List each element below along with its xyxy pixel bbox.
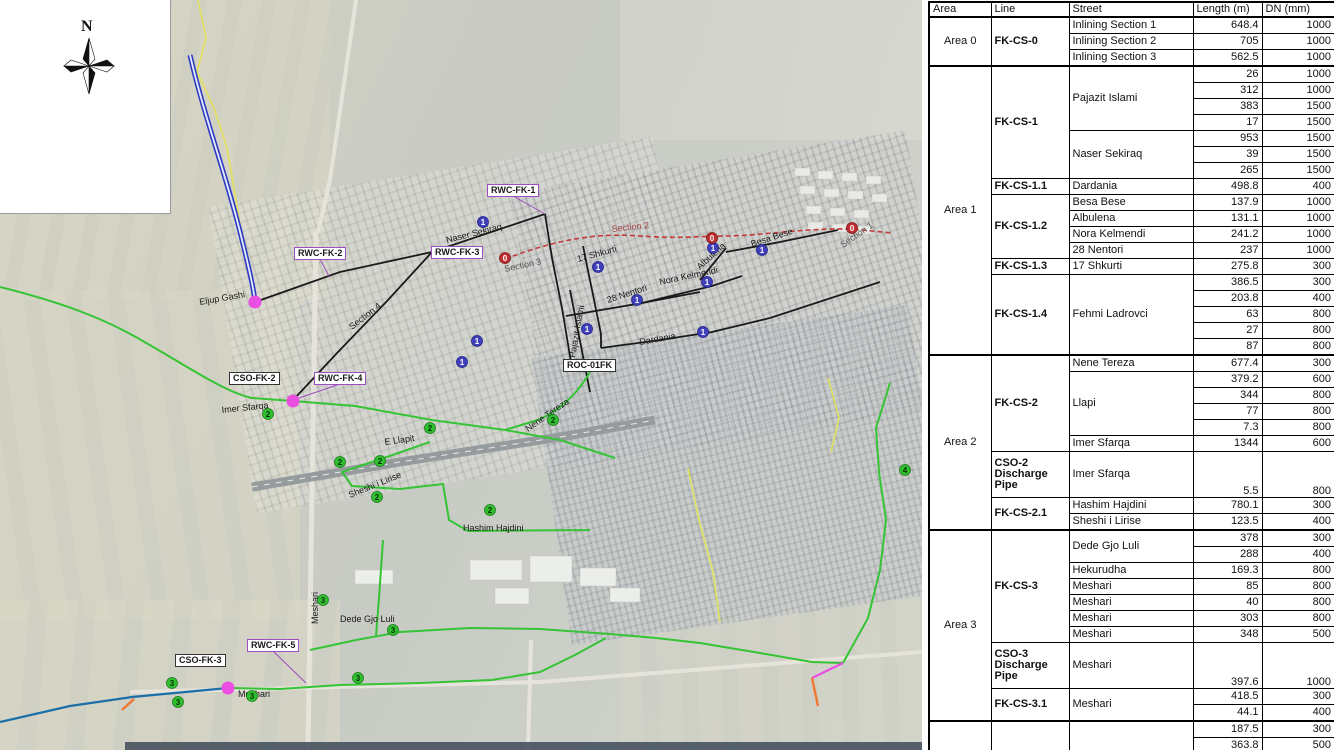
line-cell: FK-CS-2.1 <box>991 498 1069 531</box>
pipe-orange <box>122 699 134 710</box>
boundary-line-yellow <box>828 378 839 452</box>
line-cell: FK-CS-4 <box>991 721 1069 750</box>
column-header: Line <box>991 2 1069 17</box>
length-cell: 780.1 <box>1193 498 1262 514</box>
road <box>308 232 316 750</box>
page: Naser SekiraqEljup GashiSection 4Section… <box>0 0 1334 750</box>
outfall-dot <box>287 395 300 408</box>
length-cell: 386.5 <box>1193 275 1262 291</box>
length-cell: 379.2 <box>1193 372 1262 388</box>
street-cell: Naser Sekiraq <box>1069 131 1193 179</box>
street-label: Nene Tereza <box>523 396 570 433</box>
dn-cell: 1000 <box>1262 211 1334 227</box>
dn-cell: 1000 <box>1262 243 1334 259</box>
dn-cell: 1500 <box>1262 131 1334 147</box>
street-label: Besa Bese <box>750 226 794 249</box>
area-cell: Area 3 <box>929 530 991 721</box>
length-cell: 348 <box>1193 627 1262 643</box>
node-marker-number: 1 <box>475 337 480 346</box>
dn-cell: 300 <box>1262 689 1334 705</box>
road <box>318 0 356 232</box>
area-markers: 111111111100022222223333334 <box>167 217 911 708</box>
street-label: Naser Sekiraq <box>445 221 503 245</box>
street-cell: Inlining Section 3 <box>1069 50 1193 67</box>
street-cell: Imer Sfarqa <box>1069 436 1193 452</box>
node-marker-number: 0 <box>710 234 715 243</box>
length-cell: 63 <box>1193 307 1262 323</box>
dn-cell: 300 <box>1262 259 1334 275</box>
callout-leader <box>513 196 545 214</box>
pipe-orange <box>812 678 818 706</box>
street-cell: Meshari <box>1069 643 1193 689</box>
node-marker-number: 2 <box>375 493 380 502</box>
node-marker-number: 1 <box>760 246 765 255</box>
street-cell: 17 Shkurti <box>1069 259 1193 275</box>
river-conduit-gap <box>190 55 255 302</box>
dn-cell: 800 <box>1262 611 1334 627</box>
length-cell: 418.5 <box>1193 689 1262 705</box>
table-row: Area 4FK-CS-4Uglar-Bresje187.5300 <box>929 721 1334 738</box>
length-cell: 137.9 <box>1193 195 1262 211</box>
building <box>495 588 529 604</box>
dn-cell: 1500 <box>1262 99 1334 115</box>
length-cell: 237 <box>1193 243 1262 259</box>
pipe-table-panel: AreaLineStreetLength (m)DN (mm)Area 0FK-… <box>928 1 1334 749</box>
building-footprints <box>355 168 887 604</box>
dn-cell: 1000 <box>1262 643 1334 689</box>
length-cell: 953 <box>1193 131 1262 147</box>
line-cell: FK-CS-1.1 <box>991 179 1069 195</box>
length-cell: 7.3 <box>1193 420 1262 436</box>
node-marker-number: 2 <box>551 416 556 425</box>
column-header: Street <box>1069 2 1193 17</box>
length-cell: 39 <box>1193 147 1262 163</box>
dn-cell: 400 <box>1262 547 1334 563</box>
node-marker-number: 2 <box>266 410 271 419</box>
length-cell: 1344 <box>1193 436 1262 452</box>
photo-edge <box>125 742 922 750</box>
building <box>580 568 616 586</box>
dn-cell: 1000 <box>1262 34 1334 50</box>
length-cell: 26 <box>1193 66 1262 83</box>
node-marker-number: 0 <box>503 254 508 263</box>
length-cell: 677.4 <box>1193 355 1262 372</box>
area-cell: Area 0 <box>929 17 991 66</box>
dn-cell: 300 <box>1262 355 1334 372</box>
street-label: Section 2 <box>611 220 649 234</box>
column-header: Length (m) <box>1193 2 1262 17</box>
street-cell: Imer Sfarqa <box>1069 452 1193 498</box>
line-cell: FK-CS-1.3 <box>991 259 1069 275</box>
street-label: E Llapit <box>384 433 416 447</box>
street-cell: 28 Nentori <box>1069 243 1193 259</box>
street-cell: Albulena <box>1069 211 1193 227</box>
building <box>808 222 823 230</box>
length-cell: 241.2 <box>1193 227 1262 243</box>
street-cell: Pajazit Islami <box>1069 66 1193 131</box>
street-cell: Meshari <box>1069 689 1193 722</box>
street-cell: Sheshi i Lirise <box>1069 514 1193 531</box>
inlining-line-red <box>505 229 892 259</box>
dn-cell: 1000 <box>1262 227 1334 243</box>
discharge-line-teal <box>0 688 228 722</box>
boundary-line-yellow <box>688 468 720 622</box>
street-label: Imer Sfarqa <box>221 400 269 415</box>
length-cell: 562.5 <box>1193 50 1262 67</box>
length-cell: 27 <box>1193 323 1262 339</box>
street-cell: Hekurudha <box>1069 563 1193 579</box>
pipe-segments-table: AreaLineStreetLength (m)DN (mm)Area 0FK-… <box>928 1 1334 750</box>
dn-cell: 1500 <box>1262 147 1334 163</box>
street-cell: Llapi <box>1069 372 1193 436</box>
dn-cell: 800 <box>1262 579 1334 595</box>
length-cell: 275.8 <box>1193 259 1262 275</box>
dn-cell: 300 <box>1262 275 1334 291</box>
dn-cell: 300 <box>1262 721 1334 738</box>
length-cell: 705 <box>1193 34 1262 50</box>
length-cell: 312 <box>1193 83 1262 99</box>
dn-cell: 800 <box>1262 339 1334 356</box>
street-labels: Naser SekiraqEljup GashiSection 4Section… <box>199 220 875 699</box>
length-cell: 378 <box>1193 530 1262 547</box>
road <box>130 652 922 692</box>
street-cell: Dede Gjo Luli <box>1069 530 1193 563</box>
dn-cell: 1000 <box>1262 195 1334 211</box>
area-cell: Area 1 <box>929 66 991 355</box>
node-marker-number: 2 <box>338 458 343 467</box>
length-cell: 648.4 <box>1193 17 1262 34</box>
sewer-network-green <box>0 287 890 689</box>
dn-cell: 800 <box>1262 563 1334 579</box>
building <box>830 208 845 216</box>
outfall-dot <box>249 296 262 309</box>
dn-cell: 800 <box>1262 307 1334 323</box>
node-marker-number: 2 <box>488 506 493 515</box>
length-cell: 187.5 <box>1193 721 1262 738</box>
street-label: Eljup Gashi <box>199 289 246 307</box>
node-marker-number: 3 <box>321 596 326 605</box>
road <box>528 640 531 750</box>
length-cell: 87 <box>1193 339 1262 356</box>
length-cell: 203.8 <box>1193 291 1262 307</box>
sewer-network-black <box>255 214 880 398</box>
line-cell: FK-CS-3.1 <box>991 689 1069 722</box>
street-cell: Besa Bese <box>1069 195 1193 211</box>
dn-cell: 1000 <box>1262 50 1334 67</box>
dn-cell: 600 <box>1262 436 1334 452</box>
line-cell: CSO-2 Discharge Pipe <box>991 452 1069 498</box>
table-row: Area 0FK-CS-0Inlining Section 1648.41000 <box>929 17 1334 34</box>
node-marker-number: 2 <box>428 424 433 433</box>
street-cell: Inlining Section 1 <box>1069 17 1193 34</box>
building <box>872 194 887 202</box>
node-marker-number: 3 <box>356 674 361 683</box>
street-label: Section 4 <box>347 301 383 332</box>
dn-cell: 800 <box>1262 420 1334 436</box>
building <box>806 206 821 214</box>
aerial-map: Naser SekiraqEljup GashiSection 4Section… <box>0 0 922 750</box>
building <box>355 570 393 584</box>
street-cell: Hashim Hajdini <box>1069 498 1193 514</box>
node-marker-number: 3 <box>176 698 181 707</box>
dn-cell: 400 <box>1262 514 1334 531</box>
line-cell: CSO-3 Discharge Pipe <box>991 643 1069 689</box>
street-cell: Dardania <box>1069 179 1193 195</box>
length-cell: 383 <box>1193 99 1262 115</box>
street-cell: Meshari <box>1069 579 1193 595</box>
length-cell: 5.5 <box>1193 452 1262 498</box>
street-label: Hashim Hajdini <box>463 523 524 533</box>
length-cell: 397.6 <box>1193 643 1262 689</box>
map-overlay: Naser SekiraqEljup GashiSection 4Section… <box>0 0 922 750</box>
callout-leader <box>320 259 329 276</box>
street-cell: Meshari <box>1069 627 1193 643</box>
length-cell: 498.8 <box>1193 179 1262 195</box>
dn-cell: 1500 <box>1262 115 1334 131</box>
node-marker-number: 1 <box>460 358 465 367</box>
dn-cell: 300 <box>1262 498 1334 514</box>
line-cell: FK-CS-1.4 <box>991 275 1069 356</box>
line-cell: FK-CS-1.2 <box>991 195 1069 259</box>
building <box>470 560 522 580</box>
node-marker-number: 3 <box>391 626 396 635</box>
area-cell: Area 4 <box>929 721 991 750</box>
node-marker-number: 1 <box>635 296 640 305</box>
dn-cell: 600 <box>1262 372 1334 388</box>
length-cell: 131.1 <box>1193 211 1262 227</box>
street-cell: Nene Tereza <box>1069 355 1193 372</box>
node-marker-number: 3 <box>250 692 255 701</box>
table-row: Area 3FK-CS-3Dede Gjo Luli378300 <box>929 530 1334 547</box>
building <box>842 173 857 181</box>
node-marker-number: 1 <box>585 325 590 334</box>
node-marker-number: 1 <box>701 328 706 337</box>
dn-cell: 1000 <box>1262 17 1334 34</box>
dn-cell: 1500 <box>1262 163 1334 179</box>
length-cell: 303 <box>1193 611 1262 627</box>
table-row: Area 2FK-CS-2Nene Tereza677.4300 <box>929 355 1334 372</box>
street-cell: Inlining Section 2 <box>1069 34 1193 50</box>
column-header: DN (mm) <box>1262 2 1334 17</box>
line-cell: FK-CS-1 <box>991 66 1069 179</box>
length-cell: 123.5 <box>1193 514 1262 531</box>
area-cell: Area 2 <box>929 355 991 530</box>
line-cell: FK-CS-0 <box>991 17 1069 66</box>
building <box>530 556 572 582</box>
table-header-row: AreaLineStreetLength (m)DN (mm) <box>929 2 1334 17</box>
callout-leader <box>447 258 457 259</box>
building <box>800 186 815 194</box>
outfall-dot <box>222 682 235 695</box>
length-cell: 40 <box>1193 595 1262 611</box>
dn-cell: 300 <box>1262 530 1334 547</box>
length-cell: 17 <box>1193 115 1262 131</box>
dn-cell: 500 <box>1262 738 1334 750</box>
building <box>848 191 863 199</box>
street-cell: Meshari <box>1069 595 1193 611</box>
length-cell: 85 <box>1193 579 1262 595</box>
dn-cell: 800 <box>1262 388 1334 404</box>
building <box>854 210 869 218</box>
dn-cell: 1000 <box>1262 66 1334 83</box>
length-cell: 169.3 <box>1193 563 1262 579</box>
building <box>610 588 640 602</box>
node-marker-number: 1 <box>596 263 601 272</box>
node-marker-number: 1 <box>705 278 710 287</box>
length-cell: 77 <box>1193 404 1262 420</box>
callout-leader <box>273 651 306 683</box>
dn-cell: 1000 <box>1262 83 1334 99</box>
dn-cell: 800 <box>1262 452 1334 498</box>
node-marker-number: 3 <box>170 679 175 688</box>
length-cell: 288 <box>1193 547 1262 563</box>
node-marker-number: 4 <box>903 466 908 475</box>
column-header: Area <box>929 2 991 17</box>
building <box>866 176 881 184</box>
pipe-magenta <box>812 663 843 678</box>
dn-cell: 500 <box>1262 627 1334 643</box>
street-label: Dede Gjo Luli <box>340 614 395 624</box>
length-cell: 44.1 <box>1193 705 1262 722</box>
dn-cell: 400 <box>1262 179 1334 195</box>
street-label: Dardania <box>639 331 677 347</box>
dn-cell: 800 <box>1262 595 1334 611</box>
building <box>824 189 839 197</box>
line-cell: FK-CS-2 <box>991 355 1069 452</box>
street-label: 17 Shkurti <box>576 244 618 264</box>
length-cell: 265 <box>1193 163 1262 179</box>
street-cell: Fehmi Ladrovci <box>1069 275 1193 356</box>
node-marker-number: 0 <box>850 224 855 233</box>
dn-cell: 400 <box>1262 705 1334 722</box>
node-marker-number: 1 <box>481 218 486 227</box>
table-row: Area 1FK-CS-1Pajazit Islami261000 <box>929 66 1334 83</box>
street-cell: Uglar-Bresje <box>1069 721 1193 750</box>
dn-cell: 800 <box>1262 404 1334 420</box>
dn-cell: 400 <box>1262 291 1334 307</box>
outfall-dots <box>222 296 300 695</box>
street-cell: Nora Kelmendi <box>1069 227 1193 243</box>
street-cell: Meshari <box>1069 611 1193 627</box>
node-marker-number: 2 <box>378 457 383 466</box>
length-cell: 344 <box>1193 388 1262 404</box>
building <box>795 168 810 176</box>
dn-cell: 800 <box>1262 323 1334 339</box>
line-cell: FK-CS-3 <box>991 530 1069 643</box>
node-marker-number: 1 <box>711 244 716 253</box>
building <box>818 171 833 179</box>
length-cell: 363.8 <box>1193 738 1262 750</box>
